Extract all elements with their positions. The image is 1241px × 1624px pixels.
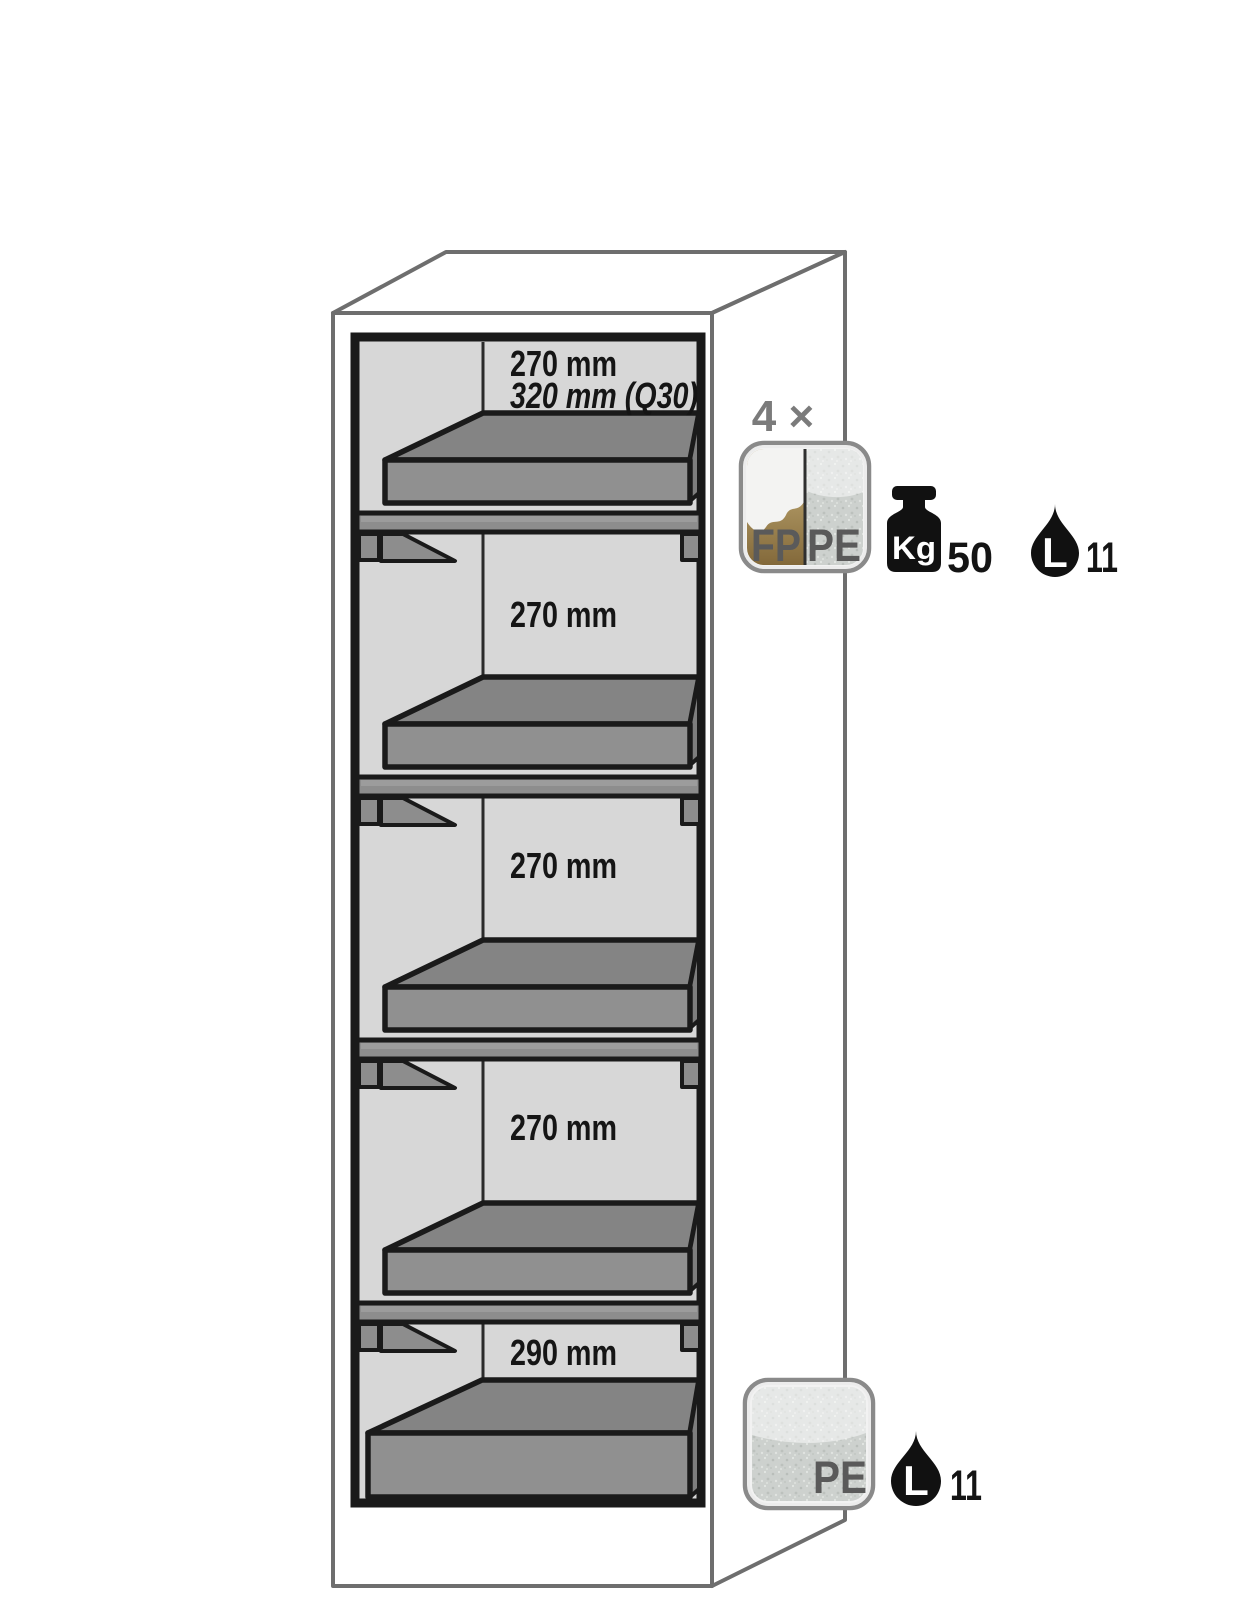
badge-label-pe: PE bbox=[807, 520, 861, 571]
weight-unit-label: Kg bbox=[892, 530, 936, 566]
shelf-board bbox=[357, 1040, 701, 1059]
volume-unit-label: L bbox=[1042, 529, 1068, 576]
shelf-bracket bbox=[682, 798, 700, 824]
badge-gloss bbox=[752, 1387, 866, 1443]
shelf-bracket bbox=[359, 1061, 379, 1087]
shelf-board bbox=[357, 777, 701, 796]
shelf-bracket bbox=[682, 1324, 700, 1350]
shelf-quantity-label: 4 × bbox=[752, 392, 814, 441]
sump-drop-icon: L bbox=[891, 1431, 941, 1506]
compartment-height-label: 270 mm bbox=[510, 845, 617, 886]
badge-gloss bbox=[805, 449, 863, 497]
sump-volume-value: 11 bbox=[950, 1462, 982, 1510]
shelf-bracket bbox=[682, 1061, 700, 1087]
weight-icon: Kg bbox=[887, 486, 941, 572]
shelf-volume-value: 11 bbox=[1086, 534, 1118, 582]
compartment-height-label: 270 mm bbox=[510, 594, 617, 635]
shelf-bracket bbox=[359, 798, 379, 824]
sump-volume-unit-label: L bbox=[903, 1457, 929, 1504]
shelf-load-value: 50 bbox=[947, 534, 993, 582]
shelf-bracket bbox=[682, 534, 700, 560]
shelf-board bbox=[357, 1303, 701, 1322]
compartment-height-label-q30: 320 mm (Q30) bbox=[510, 375, 698, 416]
safety-cabinet-diagram: 270 mm 320 mm (Q30) 270 mm 270 mm 270 mm… bbox=[0, 0, 1241, 1624]
drop-icon: L bbox=[1031, 504, 1079, 577]
sump-pe-badge: PE bbox=[745, 1380, 873, 1508]
shelf-bracket bbox=[359, 534, 379, 560]
compartment-height-label: 270 mm bbox=[510, 1107, 617, 1148]
compartment-height-label: 290 mm bbox=[510, 1332, 617, 1373]
sump-badge-label-pe: PE bbox=[813, 1452, 867, 1503]
shelf-bracket bbox=[359, 1324, 379, 1350]
shelf-board bbox=[357, 513, 701, 532]
badge-label-fp: FP bbox=[751, 520, 801, 571]
fp-pe-badge: FP PE bbox=[741, 443, 869, 571]
